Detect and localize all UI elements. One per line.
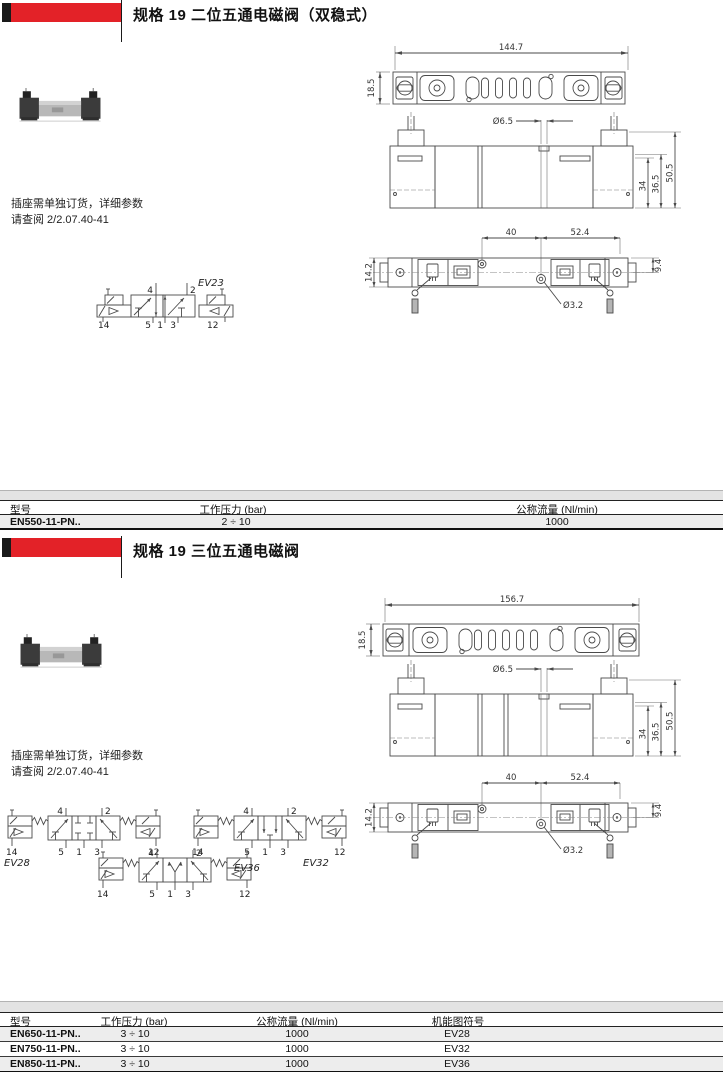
section1-banner [2,3,122,22]
cell-flow: 1000 [285,1028,308,1040]
dim-height-total: 50.5 [666,712,676,731]
port-label: 5 [145,321,151,331]
dim-height-mid: 36.5 [652,723,662,742]
cell-flow: 1000 [285,1058,308,1070]
dim-total-depth: 18.5 [367,79,377,98]
cell-pressure: 3 ÷ 10 [120,1028,149,1040]
port-label: 14 [98,321,110,331]
product-photo [16,634,106,668]
dim-hole-bottom: Ø3.2 [563,300,583,311]
port-label: 12 [334,848,345,858]
dim-total-depth: 18.5 [358,631,368,650]
dim-height-inner: 34 [639,181,649,192]
port-label: 3 [170,321,176,331]
dim-pitch-left: 40 [506,773,517,783]
dim-hole-bottom: Ø3.2 [563,845,583,856]
dim-height-total: 50.5 [666,164,676,183]
dim-pitch-left: 40 [506,228,517,238]
dim-side-left: 14.2 [365,263,375,282]
note-line-1: 插座需单独订货，详细参数 [11,748,143,764]
banner-red-block [11,3,122,22]
port-label: 4 [147,286,153,296]
cell-model: EN750-11-PN.. [10,1043,81,1055]
dim-side-right: 9.4 [654,259,664,273]
section2-title: 规格 19 三位五通电磁阀 [133,540,300,561]
dim-pitch-right: 52.4 [571,773,590,783]
cell-model: EN650-11-PN.. [10,1028,81,1040]
cell-symbol: EV28 [444,1028,470,1040]
dim-side-left: 14.2 [365,808,375,827]
spec-table-2: 型号 工作压力 (bar) 公称流量 (Nl/min) 机能图符号 EN650-… [0,1001,723,1072]
table-row: EN550-11-PN.. 2 ÷ 10 1000 [0,515,723,530]
note-line-2: 请查阅 2/2.07.40-41 [11,212,143,228]
port-label: 2 [291,807,297,817]
port-label: 1 [262,848,268,858]
port-label: 14 [97,890,109,900]
note-line-2: 请查阅 2/2.07.40-41 [11,764,143,780]
port-label: 12 [207,321,218,331]
banner-black-block [2,538,11,557]
bottom-view-drawing: 40 52.4 Ø3.2 14.2 9.4 [365,226,695,340]
cell-pressure: 3 ÷ 10 [120,1043,149,1055]
cell-model: EN850-11-PN.. [10,1058,81,1070]
port-label: 5 [149,890,155,900]
catalog-page: 规格 19 二位五通电磁阀（双稳式） 插座需单独订货，详细参数 请查阅 2/2.… [0,0,723,1072]
banner-divider [121,0,122,42]
front-view-drawing: Ø6.5 34 36.5 50.5 [370,658,682,778]
dim-height-mid: 36.5 [652,175,662,194]
table-row: EN650-11-PN.. 3 ÷ 10 1000 EV28 [0,1027,723,1042]
port-label: 4 [243,807,249,817]
dim-hole-top: Ø6.5 [493,116,513,127]
dim-total-width: 144.7 [499,43,523,53]
dim-pitch-right: 52.4 [571,228,590,238]
port-label: 3 [185,890,191,900]
cell-pressure: 2 ÷ 10 [221,516,250,528]
port-label: 14 [6,848,18,858]
pneumatic-symbol-ev23: EV23 4 2 14 5 1 3 12 [95,275,235,335]
table-header-row: 型号 工作压力 (bar) 公称流量 (Nl/min) 机能图符号 [0,1013,723,1027]
port-label: 1 [76,848,82,858]
dim-side-right: 9.4 [654,804,664,818]
section1-title: 规格 19 二位五通电磁阀（双稳式） [133,4,377,25]
bottom-view-drawing: 40 52.4 Ø3.2 14.2 9.4 [365,771,695,885]
dim-hole-top: Ø6.5 [493,664,513,675]
port-label: 2 [196,849,202,859]
port-label: 2 [190,286,196,296]
port-label: 5 [58,848,64,858]
cell-model: EN550-11-PN.. [10,516,81,528]
cell-pressure: 3 ÷ 10 [120,1058,149,1070]
cell-symbol: EV32 [444,1043,470,1055]
port-label: 2 [105,807,111,817]
table-row: EN850-11-PN.. 3 ÷ 10 1000 EV36 [0,1057,723,1072]
symbol-label: EV36 [234,863,260,874]
table-band [0,490,723,501]
symbol-label: EV28 [4,858,30,869]
port-label: 4 [148,849,154,859]
section2-banner [2,538,122,557]
product-photo [15,88,105,122]
port-label: 4 [57,807,63,817]
spec-table-1: 型号 工作压力 (bar) 公称流量 (Nl/min) EN550-11-PN.… [0,490,723,530]
banner-black-block [2,3,11,22]
pneumatic-symbol-ev36: 4 2 14 5 1 3 12 EV36 [95,846,255,912]
cell-symbol: EV36 [444,1058,470,1070]
table-header-row: 型号 工作压力 (bar) 公称流量 (Nl/min) [0,501,723,515]
banner-red-block [11,538,122,557]
top-view-drawing: 144.7 18.5 [360,40,660,116]
table-row: EN750-11-PN.. 3 ÷ 10 1000 EV32 [0,1042,723,1057]
symbol-label: EV32 [303,858,329,869]
port-label: 3 [280,848,286,858]
cell-flow: 1000 [545,516,568,528]
table-band [0,1001,723,1013]
ordering-note: 插座需单独订货，详细参数 请查阅 2/2.07.40-41 [11,196,143,228]
banner-divider [121,536,122,578]
front-view-drawing: Ø6.5 34 36.5 50.5 [370,110,682,230]
port-label: 1 [167,890,173,900]
port-label: 12 [239,890,250,900]
note-line-1: 插座需单独订货，详细参数 [11,196,143,212]
cell-flow: 1000 [285,1043,308,1055]
ordering-note: 插座需单独订货，详细参数 请查阅 2/2.07.40-41 [11,748,143,780]
port-label: 1 [157,321,163,331]
dim-height-inner: 34 [639,729,649,740]
dim-total-width: 156.7 [500,595,524,605]
symbol-label: EV23 [198,278,224,289]
